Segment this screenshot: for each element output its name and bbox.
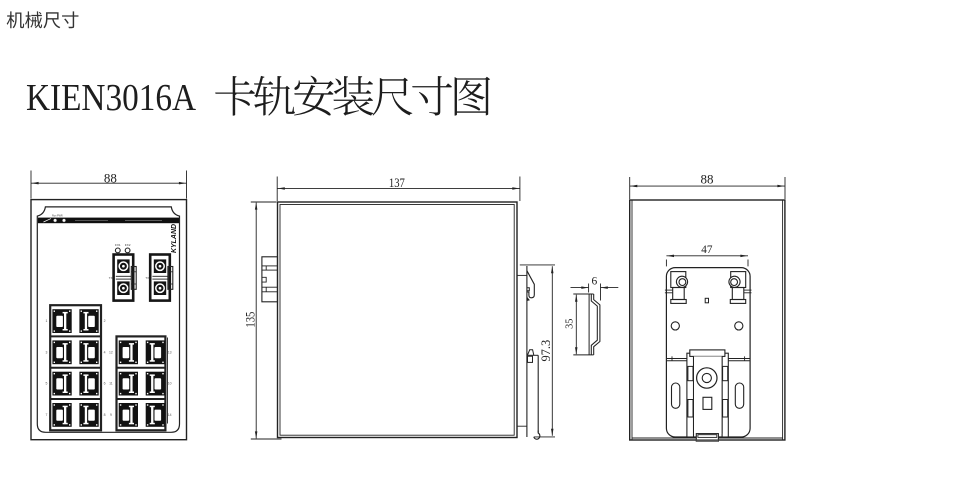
- svg-text:6: 6: [104, 382, 106, 386]
- svg-text:11: 11: [109, 382, 113, 386]
- svg-text:10: 10: [168, 382, 172, 386]
- svg-text:88: 88: [104, 170, 117, 185]
- svg-text:135: 135: [244, 312, 258, 328]
- svg-text:7: 7: [45, 413, 47, 417]
- svg-text:88: 88: [701, 172, 714, 187]
- svg-text:5: 5: [45, 382, 47, 386]
- svg-text:1: 1: [45, 319, 47, 323]
- svg-text:2: 2: [104, 319, 106, 323]
- svg-text:14: 14: [168, 413, 172, 417]
- svg-text:12: 12: [109, 350, 113, 354]
- svg-text:FX2: FX2: [125, 243, 131, 247]
- svg-text:13: 13: [168, 350, 172, 354]
- svg-text:KYLAND: KYLAND: [169, 223, 178, 253]
- svg-text:3: 3: [45, 350, 47, 354]
- svg-text:TX: TX: [109, 276, 113, 280]
- svg-text:35: 35: [565, 319, 576, 329]
- svg-text:97.3: 97.3: [539, 340, 553, 362]
- svg-text:47: 47: [701, 244, 713, 256]
- svg-text:FX1: FX1: [115, 243, 121, 247]
- svg-text:4: 4: [104, 350, 106, 354]
- svg-text:TX: TX: [145, 276, 149, 280]
- svg-text:6: 6: [592, 275, 598, 287]
- svg-text:8: 8: [104, 413, 106, 417]
- svg-text:137: 137: [389, 176, 405, 190]
- svg-text:9: 9: [110, 413, 112, 417]
- svg-text:Run PWR: Run PWR: [52, 215, 63, 218]
- svg-text:KIEN3016A: KIEN3016A: [26, 77, 196, 119]
